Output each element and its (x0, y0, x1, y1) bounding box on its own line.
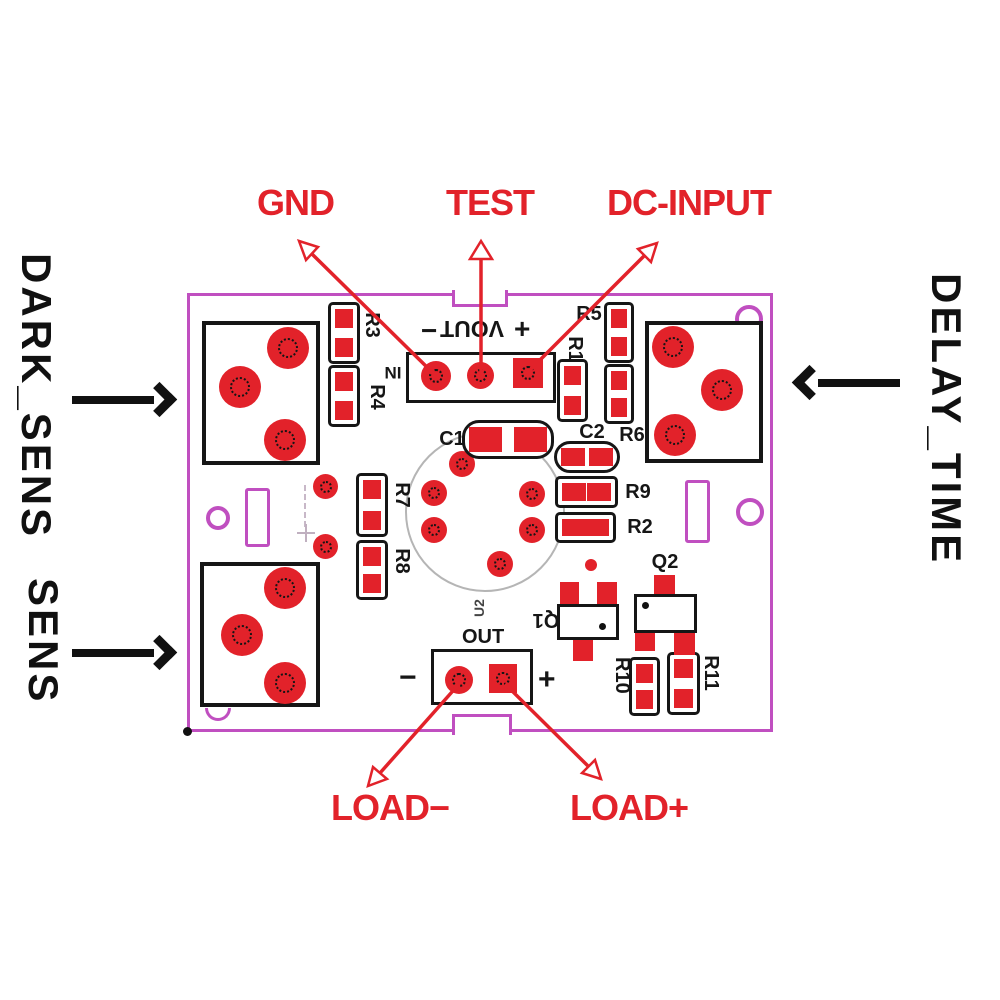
solder-pad (264, 419, 306, 461)
r7-label: R7 (392, 482, 412, 508)
resistor-footprint-r2 (555, 512, 616, 543)
solder-pad (219, 366, 261, 408)
r1-label: R1 (565, 334, 585, 364)
load-minus-label: LOAD− (331, 790, 449, 826)
resistor-footprint-r6 (604, 364, 634, 424)
drill-mark (275, 430, 295, 450)
dc-input-label: DC-INPUT (607, 185, 771, 221)
vout-label: VOUT (448, 317, 504, 340)
c2-label: C2 (576, 422, 608, 442)
vout-plus-pad (513, 358, 543, 388)
drill-mark (278, 338, 298, 358)
solder-pad (701, 369, 743, 411)
resistor-footprint-r10 (629, 657, 660, 716)
drill-mark (474, 369, 487, 382)
r3-label: R3 (362, 312, 382, 338)
r10-label: R10 (612, 657, 632, 693)
mounting-hole-right (736, 498, 764, 526)
vout-minus-pad (421, 361, 451, 391)
drill-mark (665, 425, 685, 445)
solder-pad (597, 582, 617, 606)
drill-mark (320, 481, 332, 493)
drill-mark (275, 673, 295, 693)
vout-test-pad (467, 362, 494, 389)
solder-pad (313, 474, 338, 499)
out-label: OUT (462, 627, 502, 647)
resistor-footprint-r7 (356, 473, 388, 537)
crosshair-mark (297, 524, 315, 542)
q1-label: Q1 (531, 610, 561, 630)
pin1-dot (642, 602, 649, 609)
out-minus-pad (445, 666, 473, 694)
capacitor-footprint-c2 (554, 441, 620, 473)
solder-pad (264, 662, 306, 704)
transistor-q1-body (557, 604, 619, 640)
load-minus-arrowhead (368, 767, 387, 786)
drill-mark (526, 524, 539, 537)
drill-mark (428, 487, 441, 500)
pin1-dot (599, 623, 606, 630)
resistor-footprint-r4 (328, 365, 360, 427)
dark-sens-label: DARK_SENS (15, 253, 57, 523)
resistor-footprint-r9 (555, 476, 618, 508)
dashed-guide-line (304, 485, 306, 527)
delay-time-label: DELAY_TIME (925, 273, 967, 553)
out-plus-sign: + (538, 665, 556, 695)
test-label: TEST (446, 185, 534, 221)
resistor-footprint-r11 (667, 652, 700, 715)
r5-label: R5 (573, 304, 605, 324)
solder-pad (652, 326, 694, 368)
drill-mark (521, 366, 535, 380)
r2-label: R2 (626, 517, 654, 537)
drill-mark (232, 625, 252, 645)
resistor-footprint-r3 (328, 302, 360, 364)
drill-mark (456, 458, 469, 471)
r8-label: R8 (392, 548, 412, 574)
drill-mark (428, 524, 441, 537)
drill-mark (494, 558, 507, 571)
mounting-hole-left (206, 506, 230, 530)
solder-pad (560, 582, 579, 606)
r4-label: R4 (367, 384, 387, 410)
test-arrowhead (470, 241, 492, 259)
resistor-footprint-r8 (356, 540, 388, 600)
vout-plus-sign: + (514, 315, 530, 343)
load-plus-label: LOAD+ (570, 790, 688, 826)
slot-right (685, 480, 710, 543)
solder-pad (519, 481, 545, 507)
out-minus-sign: − (399, 663, 417, 693)
sens-label: SENS (22, 578, 64, 698)
board-notch-top (452, 290, 508, 307)
drill-mark (496, 672, 509, 686)
solder-pad (221, 614, 263, 656)
drill-mark (526, 488, 539, 501)
gnd-arrowhead (299, 241, 318, 260)
pcb-annotation-diagram: − VOUT + IN OUT U2 − + R3 R4 R5 R1 R6 C2… (0, 0, 1000, 1000)
r11-label: R11 (701, 655, 721, 691)
drill-mark (452, 673, 465, 686)
r9-label: R9 (624, 482, 652, 502)
solder-pad (654, 414, 696, 456)
u2-label: U2 (472, 597, 486, 619)
q2-label: Q2 (650, 552, 680, 572)
delay-time-arrow (818, 379, 900, 387)
corner-dot (183, 727, 192, 736)
dark-sens-arrowhead (142, 382, 177, 417)
slot-left (245, 488, 270, 547)
c1-label: C1 (438, 429, 466, 449)
solder-pad (421, 517, 447, 543)
resistor-footprint-r1 (557, 359, 588, 422)
solder-pad (487, 551, 513, 577)
drill-mark (712, 380, 732, 400)
solder-pad (267, 327, 309, 369)
drill-mark (230, 377, 250, 397)
solder-pad (635, 630, 655, 651)
dc-input-arrowhead (638, 243, 657, 262)
transistor-q2-body (634, 594, 697, 633)
solder-pad (674, 630, 695, 655)
solder-pad (421, 480, 447, 506)
r6-label: R6 (617, 425, 647, 445)
out-plus-pad (489, 664, 517, 693)
solder-pad (264, 567, 306, 609)
resistor-footprint-r5 (604, 302, 634, 363)
load-plus-arrowhead (582, 760, 601, 779)
capacitor-footprint-c1 (462, 420, 554, 459)
drill-mark (320, 541, 332, 553)
gnd-label: GND (257, 185, 334, 221)
in-label: IN (381, 364, 405, 381)
solder-pad (519, 517, 545, 543)
board-notch-bottom (452, 714, 512, 735)
drill-mark (275, 578, 295, 598)
via-dot (585, 559, 597, 571)
drill-mark (663, 337, 683, 357)
sens-arrowhead (142, 635, 177, 670)
vout-minus-sign: − (421, 317, 437, 345)
delay-time-arrowhead (792, 365, 827, 400)
solder-pad (313, 534, 338, 559)
drill-mark (429, 369, 443, 383)
